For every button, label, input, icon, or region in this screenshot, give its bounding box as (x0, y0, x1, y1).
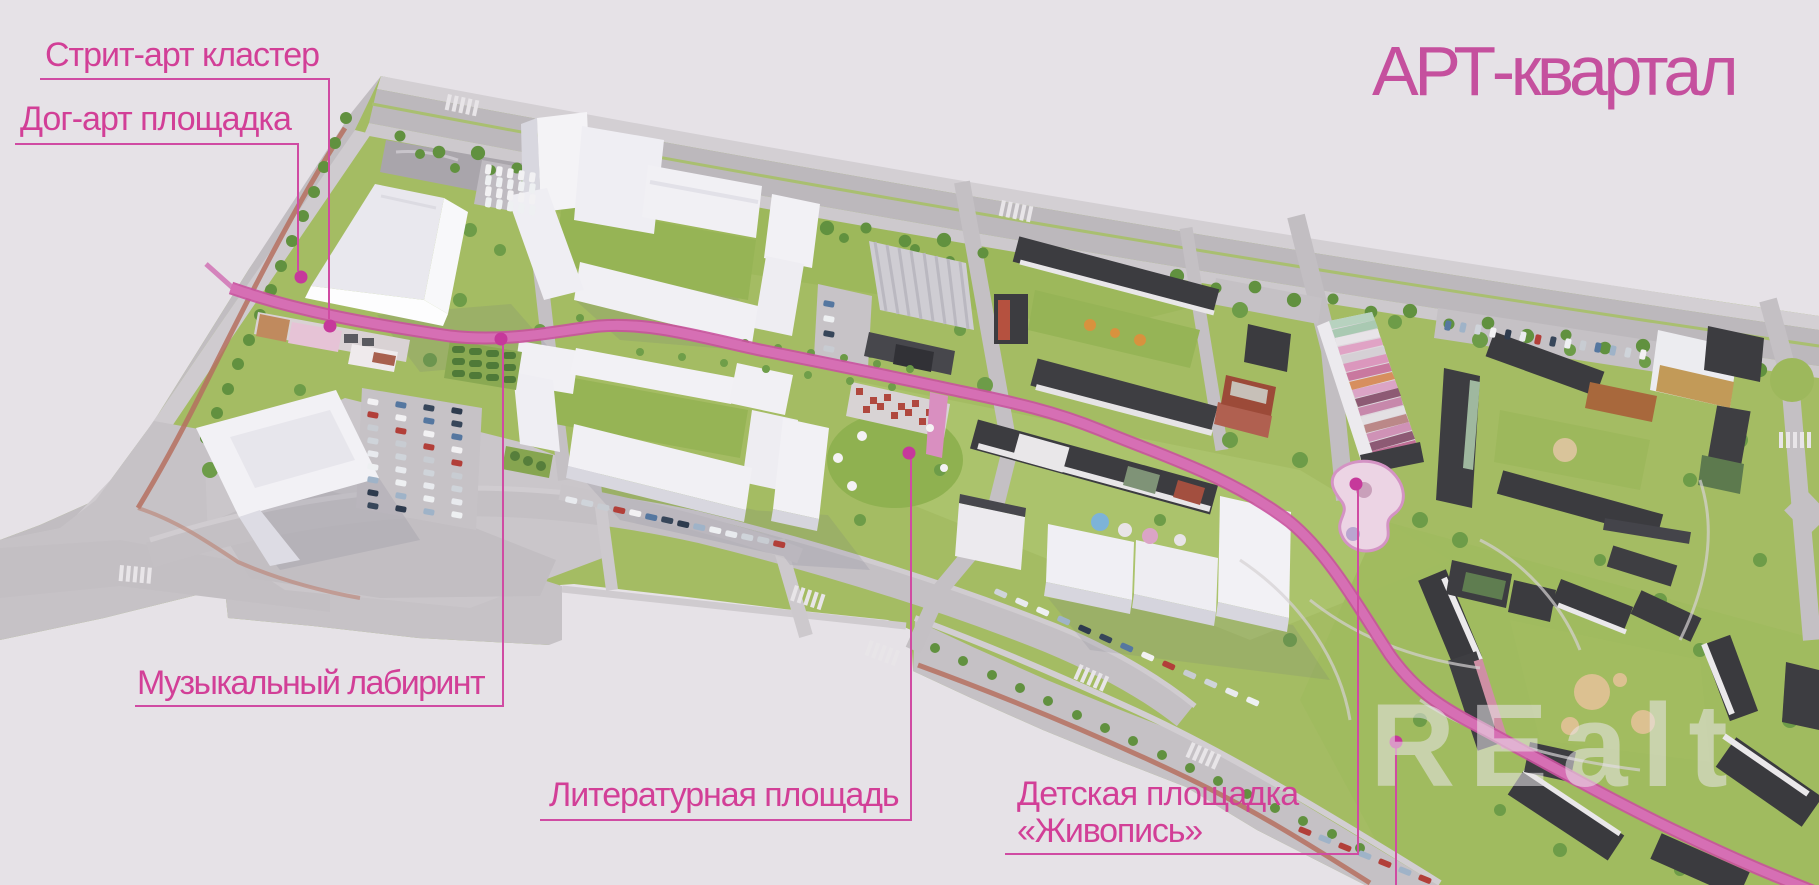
svg-text:Стрит-арт кластер: Стрит-арт кластер (45, 36, 319, 74)
svg-text:«Живопись»: «Живопись» (1017, 812, 1202, 850)
svg-text:Музыкальный лабиринт: Музыкальный лабиринт (137, 664, 485, 702)
svg-text:REalt: REalt (1370, 680, 1742, 812)
svg-text:Литературная площадь: Литературная площадь (549, 776, 899, 814)
svg-text:Дог-арт площадка: Дог-арт площадка (20, 100, 292, 138)
svg-text:Детская площадка: Детская площадка (1017, 775, 1299, 813)
svg-text:АРТ-квартал: АРТ-квартал (1372, 32, 1734, 110)
